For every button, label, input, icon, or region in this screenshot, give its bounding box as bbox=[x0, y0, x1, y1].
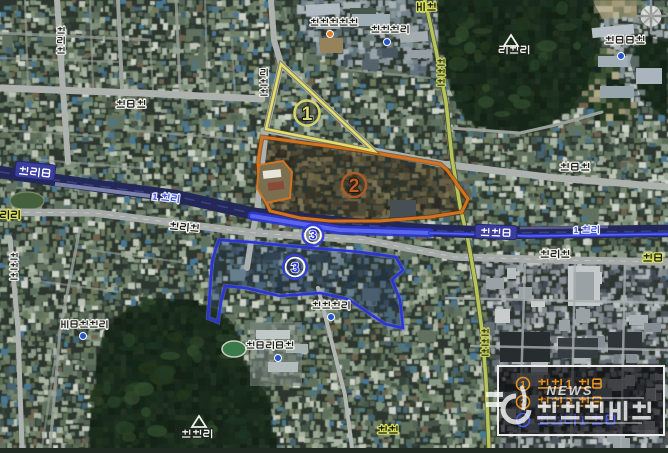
svg-text:3: 3 bbox=[291, 259, 299, 276]
svg-text:1: 1 bbox=[574, 225, 579, 235]
svg-text:3: 3 bbox=[309, 228, 316, 243]
svg-text:1: 1 bbox=[302, 104, 313, 125]
svg-text:NEWS: NEWS bbox=[547, 383, 594, 398]
svg-text:2: 2 bbox=[349, 176, 360, 197]
